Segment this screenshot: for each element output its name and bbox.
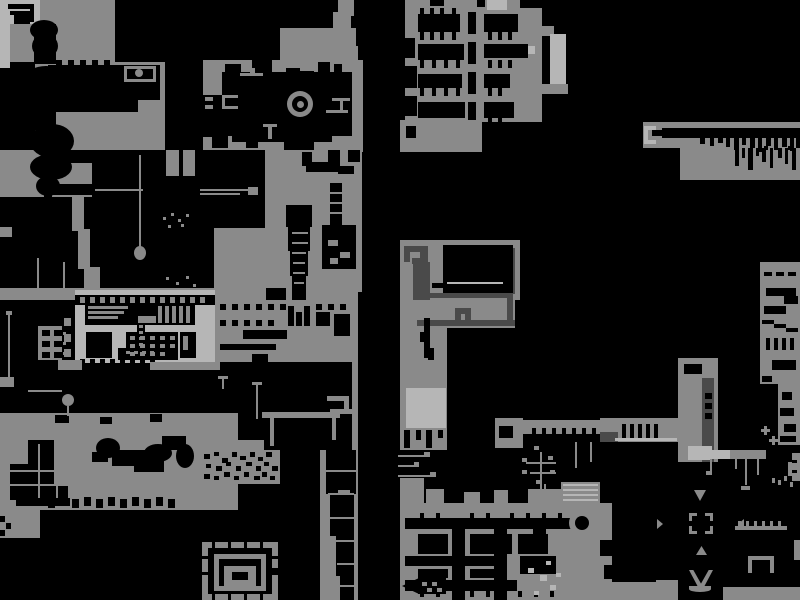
map-region — [90, 297, 95, 303]
map-region — [56, 448, 58, 498]
map-region — [200, 440, 264, 450]
map-region — [160, 297, 165, 303]
map-region — [252, 60, 272, 74]
map-region — [204, 474, 210, 479]
map-region — [706, 471, 712, 475]
map-region — [228, 542, 231, 548]
map-region — [552, 428, 556, 436]
map-region — [292, 252, 306, 254]
map-region — [88, 311, 124, 314]
map-region — [150, 297, 155, 303]
map-region — [244, 304, 250, 310]
map-region — [705, 393, 712, 399]
map-region — [444, 60, 448, 68]
map-region — [28, 390, 62, 392]
map-region — [522, 470, 527, 474]
map-region — [160, 336, 165, 340]
map-region — [68, 60, 74, 67]
map-region — [190, 297, 195, 303]
map-region — [288, 227, 310, 251]
map-region — [782, 338, 786, 350]
map-region — [486, 513, 490, 518]
map-region — [130, 336, 135, 340]
map-region — [126, 351, 130, 354]
map-region — [100, 359, 105, 365]
map-region — [292, 276, 306, 300]
map-region — [735, 526, 787, 530]
map-region — [562, 428, 566, 436]
map-region — [432, 582, 437, 586]
map-region — [644, 140, 656, 144]
map-region — [780, 408, 794, 416]
map-region — [680, 148, 800, 180]
map-region — [334, 64, 342, 72]
map-region — [796, 138, 800, 148]
map-region — [762, 320, 774, 324]
map-region — [477, 0, 485, 7]
map-region — [44, 194, 52, 222]
map-region — [770, 130, 772, 138]
map-region — [183, 336, 188, 350]
map-region — [62, 394, 74, 406]
map-region — [498, 60, 502, 68]
map-region — [130, 344, 135, 348]
map-region — [200, 193, 240, 195]
map-region — [426, 430, 432, 448]
map-region — [139, 337, 143, 340]
map-region — [792, 148, 796, 170]
map-region — [754, 521, 757, 526]
map-region — [248, 187, 258, 195]
map-region — [0, 516, 5, 522]
map-region — [186, 276, 189, 279]
map-region — [330, 183, 342, 227]
map-region — [548, 456, 553, 460]
map-region — [498, 118, 502, 124]
map-region — [55, 415, 69, 423]
map-region — [426, 489, 444, 504]
map-region — [656, 580, 678, 586]
map-region — [420, 32, 424, 40]
map-region — [770, 560, 774, 573]
map-region — [32, 34, 58, 58]
bowl-marker — [689, 586, 711, 592]
map-region — [150, 336, 155, 340]
map-region — [778, 480, 781, 485]
map-region — [788, 146, 792, 150]
map-region — [144, 499, 151, 508]
map-region — [398, 455, 424, 457]
map-region — [232, 320, 238, 326]
map-region — [404, 246, 410, 262]
map-region — [414, 462, 419, 467]
compass-reticle — [705, 531, 713, 534]
map-region — [630, 424, 634, 438]
map-region — [250, 68, 255, 73]
map-region — [220, 304, 226, 310]
map-region — [232, 132, 332, 142]
game-map-screenshot — [0, 0, 800, 600]
map-region — [54, 352, 62, 358]
map-region — [748, 560, 752, 573]
map-region — [416, 430, 421, 440]
map-region — [488, 118, 492, 124]
map-region — [757, 459, 759, 475]
map-region — [484, 44, 528, 58]
map-region — [30, 124, 74, 158]
map-region — [772, 360, 796, 370]
map-region — [405, 556, 505, 566]
map-region — [550, 34, 566, 90]
map-region — [532, 428, 536, 436]
map-region — [761, 429, 770, 432]
map-region — [447, 282, 503, 284]
map-region — [14, 15, 30, 24]
map-region — [774, 338, 778, 350]
map-region — [544, 484, 546, 492]
map-region — [330, 192, 342, 194]
map-region — [526, 462, 556, 464]
map-region — [42, 341, 50, 347]
map-region — [550, 470, 555, 474]
map-region — [498, 32, 502, 40]
map-region — [84, 497, 91, 506]
map-region — [75, 291, 215, 295]
map-region — [784, 476, 787, 481]
map-region — [507, 293, 513, 323]
map-region — [67, 406, 69, 416]
map-region — [95, 189, 143, 191]
map-region — [572, 428, 576, 436]
map-region — [142, 351, 146, 354]
map-region — [272, 466, 278, 471]
map-region — [168, 225, 171, 228]
map-region — [168, 499, 175, 508]
map-region — [244, 594, 247, 600]
map-region — [266, 288, 286, 300]
map-region — [160, 352, 165, 356]
map-region — [264, 462, 269, 466]
map-region — [88, 316, 118, 319]
map-region — [488, 60, 492, 68]
map-region — [654, 424, 658, 438]
map-region — [262, 472, 267, 477]
map-region — [436, 513, 440, 518]
map-region — [526, 513, 530, 518]
map-region — [766, 288, 796, 296]
map-region — [484, 74, 510, 88]
map-region — [234, 476, 239, 480]
map-region — [780, 436, 796, 442]
map-region — [762, 521, 765, 526]
map-region — [232, 572, 248, 580]
map-region — [63, 342, 66, 345]
map-region — [792, 460, 797, 463]
map-region — [268, 320, 274, 326]
map-region — [244, 320, 250, 326]
map-region — [104, 60, 110, 67]
map-region — [176, 282, 179, 285]
map-region — [252, 354, 268, 362]
map-region — [120, 359, 125, 365]
map-region — [244, 542, 247, 548]
map-region — [406, 388, 446, 428]
map-region — [428, 348, 434, 360]
map-region — [528, 568, 534, 573]
map-region — [337, 563, 354, 565]
map-region — [214, 476, 219, 480]
map-region — [766, 138, 771, 146]
map-region — [420, 88, 424, 96]
map-region — [42, 330, 50, 336]
map-region — [575, 516, 589, 530]
map-region — [268, 304, 274, 310]
map-region — [784, 296, 798, 304]
map-region — [540, 575, 547, 581]
compass-arrow-up — [696, 546, 707, 555]
map-region — [0, 227, 12, 237]
map-region — [422, 582, 427, 586]
map-region — [468, 34, 476, 42]
map-region — [786, 130, 788, 138]
map-region — [224, 472, 230, 477]
map-region — [418, 569, 448, 578]
map-region — [170, 336, 175, 340]
map-region — [710, 459, 712, 471]
map-region — [78, 229, 90, 269]
map-region — [64, 334, 71, 342]
map-region — [150, 362, 220, 370]
map-region — [746, 521, 749, 526]
map-region — [316, 304, 322, 310]
map-region — [741, 486, 750, 490]
map-region — [762, 376, 772, 382]
map-region — [339, 585, 354, 587]
map-region — [766, 338, 770, 350]
map-region — [256, 320, 262, 326]
map-region — [723, 587, 800, 600]
map-region — [455, 308, 461, 322]
map-region — [124, 79, 156, 82]
map-region — [132, 497, 139, 506]
map-region — [430, 8, 434, 14]
map-region — [788, 112, 796, 122]
map-region — [550, 591, 554, 597]
map-region — [522, 458, 527, 462]
map-region — [140, 359, 145, 365]
map-region — [212, 136, 228, 148]
map-region — [318, 62, 330, 72]
map-region — [10, 484, 70, 486]
map-region — [183, 150, 195, 176]
map-region — [240, 73, 263, 76]
map-region — [427, 588, 432, 592]
map-region — [85, 266, 87, 288]
compass-reticle — [689, 513, 692, 521]
map-region — [332, 418, 336, 440]
map-region — [236, 466, 241, 471]
map-region — [340, 304, 346, 310]
map-region — [646, 424, 650, 438]
map-region — [203, 95, 223, 137]
map-region — [418, 102, 465, 118]
map-region — [150, 344, 155, 348]
map-region — [326, 110, 348, 113]
map-region — [200, 297, 205, 303]
eye-iris — [297, 101, 304, 108]
map-region — [470, 591, 474, 597]
map-region — [440, 32, 444, 40]
map-region — [764, 272, 772, 276]
map-region — [80, 60, 86, 67]
map-region — [470, 513, 474, 518]
map-region — [590, 442, 592, 462]
map-region — [266, 568, 278, 573]
map-region — [63, 262, 65, 288]
map-region — [42, 352, 50, 358]
map-region — [48, 499, 55, 508]
map-region — [769, 439, 778, 442]
map-region — [764, 146, 768, 150]
map-region — [710, 138, 714, 146]
map-region — [499, 426, 513, 438]
map-region — [508, 32, 512, 40]
map-region — [456, 88, 460, 96]
map-region — [592, 428, 596, 436]
map-region — [784, 424, 796, 432]
map-region — [212, 542, 215, 548]
map-region — [165, 306, 169, 323]
map-region — [756, 148, 759, 156]
map-region — [108, 497, 115, 506]
map-region — [222, 106, 238, 109]
map-region — [166, 150, 179, 176]
map-region — [88, 306, 128, 309]
map-region — [338, 490, 350, 495]
map-region — [792, 453, 800, 481]
map-region — [762, 148, 766, 162]
map-region — [430, 0, 444, 6]
map-region — [340, 28, 356, 48]
map-region — [214, 228, 266, 292]
map-region — [64, 318, 71, 326]
map-region — [170, 297, 175, 303]
map-region — [256, 304, 262, 310]
map-region — [130, 359, 135, 365]
map-region — [563, 489, 598, 491]
map-region — [403, 66, 417, 88]
map-region — [266, 452, 272, 457]
map-region — [340, 576, 354, 600]
map-region — [745, 459, 747, 485]
map-region — [280, 28, 342, 62]
map-region — [398, 475, 430, 477]
map-region — [166, 277, 169, 280]
map-region — [204, 454, 210, 459]
map-region — [232, 304, 238, 310]
map-region — [542, 428, 546, 436]
map-region — [270, 476, 275, 480]
map-region — [158, 306, 162, 323]
map-region — [244, 472, 249, 477]
map-region — [200, 189, 252, 191]
map-region — [788, 272, 796, 276]
map-region — [418, 74, 462, 88]
map-region — [54, 341, 62, 347]
map-region — [54, 330, 62, 336]
map-region — [418, 14, 460, 32]
map-region — [638, 424, 642, 438]
map-region — [420, 332, 426, 342]
map-region — [730, 450, 766, 459]
map-region — [180, 297, 185, 303]
map-region — [222, 379, 224, 389]
map-region — [202, 556, 208, 559]
map-region — [292, 242, 308, 244]
map-region — [398, 465, 414, 467]
map-region — [120, 297, 125, 303]
map-region — [294, 282, 304, 284]
map-region — [6, 523, 11, 529]
map-region — [139, 155, 141, 247]
map-region — [205, 105, 213, 109]
map-region — [792, 470, 797, 473]
map-region — [786, 328, 798, 332]
map-region — [770, 114, 776, 122]
map-region — [508, 60, 512, 68]
map-region — [179, 306, 183, 323]
map-region — [776, 272, 784, 276]
map-region — [0, 530, 5, 536]
map-region — [186, 214, 189, 217]
map-region — [494, 490, 508, 504]
map-region — [752, 112, 758, 122]
map-region — [575, 442, 577, 468]
map-region — [420, 252, 428, 262]
map-region — [452, 32, 456, 40]
map-region — [58, 360, 82, 370]
map-region — [80, 297, 85, 303]
map-region — [186, 306, 190, 323]
map-region — [228, 594, 231, 600]
map-region — [212, 594, 215, 600]
map-region — [737, 114, 745, 122]
map-region — [443, 245, 513, 295]
map-region — [440, 8, 444, 14]
map-region — [470, 534, 512, 554]
map-region — [742, 138, 746, 145]
map-region — [700, 450, 730, 459]
map-region — [202, 542, 208, 600]
compass-arrow-down — [694, 490, 706, 501]
map-region — [518, 26, 554, 36]
map-region — [6, 311, 12, 315]
map-region — [735, 459, 737, 469]
map-region — [498, 88, 502, 96]
map-region — [288, 306, 294, 326]
map-region — [260, 594, 263, 600]
map-region — [72, 197, 84, 231]
map-region — [330, 212, 342, 214]
map-region — [256, 385, 258, 419]
map-region — [403, 96, 417, 116]
map-region — [468, 64, 476, 72]
map-region — [452, 8, 456, 14]
map-region — [406, 126, 416, 138]
map-region — [60, 497, 67, 506]
map-region — [790, 338, 794, 350]
map-region — [96, 499, 103, 508]
